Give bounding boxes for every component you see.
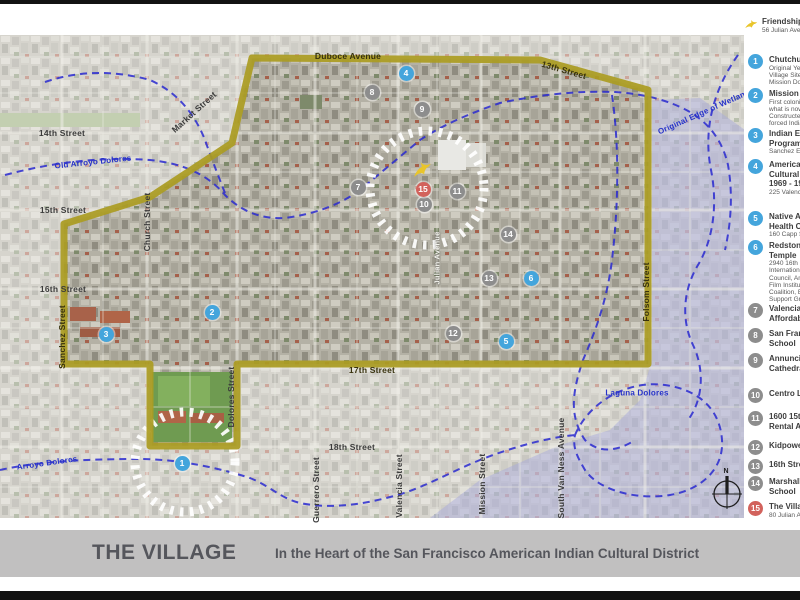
svg-text:N: N [724,468,729,475]
top-border-bar [0,0,800,4]
legend-item-1: 1ChutchuiOriginal YelamuVillage Site, ne… [748,54,800,86]
legend-marker-15: 15 [748,501,763,516]
legend-marker-9: 9 [748,353,763,368]
legend-item-text: San Francisco FriendsSchool [769,328,800,348]
legend-item-text: AnnunciationCathedral [769,353,800,373]
legend-intro-title: Friendship House [762,17,800,27]
legend-item-4: 4American IndianCultural Center1969 - 19… [748,159,800,196]
legend-item-text: Mission DoloresFirst colonization site o… [769,88,800,128]
legend-item-text: Kidpower Park [769,440,800,451]
legend-item-12: 12Kidpower Park [748,440,800,455]
legend-marker-2: 2 [748,88,763,103]
legend-marker-5: 5 [748,211,763,226]
legend-item-text: The Village80 Julian Avenue [769,501,800,519]
legend-item-6: 6Redstone LaborTemple2940 16th Street.In… [748,240,800,304]
page-title: THE VILLAGE [92,541,236,565]
legend-item-text: 16th Street BART Plaza [769,459,800,470]
legend-intro-address: 56 Julian Avenue [762,27,800,34]
map-canvas: N [0,35,745,518]
hummingbird-icon [744,18,759,33]
legend-item-3: 3Indian EducationProgramSanchez Elementa… [748,128,800,155]
legend-item-11: 111600 15th StreetRental Apartments [748,411,800,431]
legend-item-8: 8San Francisco FriendsSchool [748,328,800,348]
legend-marker-10: 10 [748,388,763,403]
legend-item-5: 5Native AmericanHealth Center160 Capp St… [748,211,800,238]
legend-item-text: American IndianCultural Center1969 - 198… [769,159,800,196]
legend-marker-11: 11 [748,411,763,426]
legend-marker-13: 13 [748,459,763,474]
legend-intro-text: Friendship House 56 Julian Avenue [762,16,800,34]
legend-item-text: Indian EducationProgramSanchez Elementar… [769,128,800,155]
legend-item-text: Redstone LaborTemple2940 16th Street.Int… [769,240,800,304]
legend-item-2: 2Mission DoloresFirst colonization site … [748,88,800,128]
legend-item-9: 9AnnunciationCathedral [748,353,800,373]
legend-item-text: ChutchuiOriginal YelamuVillage Site, nea… [769,54,800,86]
legend-marker-12: 12 [748,440,763,455]
legend-marker-3: 3 [748,128,763,143]
page-subtitle: In the Heart of the San Francisco Americ… [275,546,699,561]
legend-marker-6: 6 [748,240,763,255]
legend-marker-14: 14 [748,476,763,491]
legend-marker-1: 1 [748,54,763,69]
legend-intro: Friendship House 56 Julian Avenue [744,16,800,34]
legend-item-text: 1600 15th StreetRental Apartments [769,411,800,431]
legend-marker-8: 8 [748,328,763,343]
poster-page: { "frame": { "title": "THE VILLAGE", "su… [0,0,800,600]
legend-item-15: 15The Village80 Julian Avenue [748,501,800,519]
legend-panel: Friendship House 56 Julian Avenue 1Chutc… [744,4,800,518]
legend-marker-4: 4 [748,159,763,174]
legend-item-14: 14Marshall ElementarySchool [748,476,800,496]
legend-marker-7: 7 [748,303,763,318]
title-bar: THE VILLAGE In the Heart of the San Fran… [0,530,800,577]
legend-item-7: 7Valencia GardensAffordable Housing [748,303,800,323]
legend-item-text: Marshall ElementarySchool [769,476,800,496]
legend-item-13: 1316th Street BART Plaza [748,459,800,474]
aerial-map-image: N [0,35,745,518]
legend-item-text: Valencia GardensAffordable Housing [769,303,800,323]
legend-item-text: Native AmericanHealth Center160 Capp Str… [769,211,800,238]
legend-item-text: Centro Latino [769,388,800,399]
legend-item-10: 10Centro Latino [748,388,800,403]
bottom-border-bar [0,591,800,600]
